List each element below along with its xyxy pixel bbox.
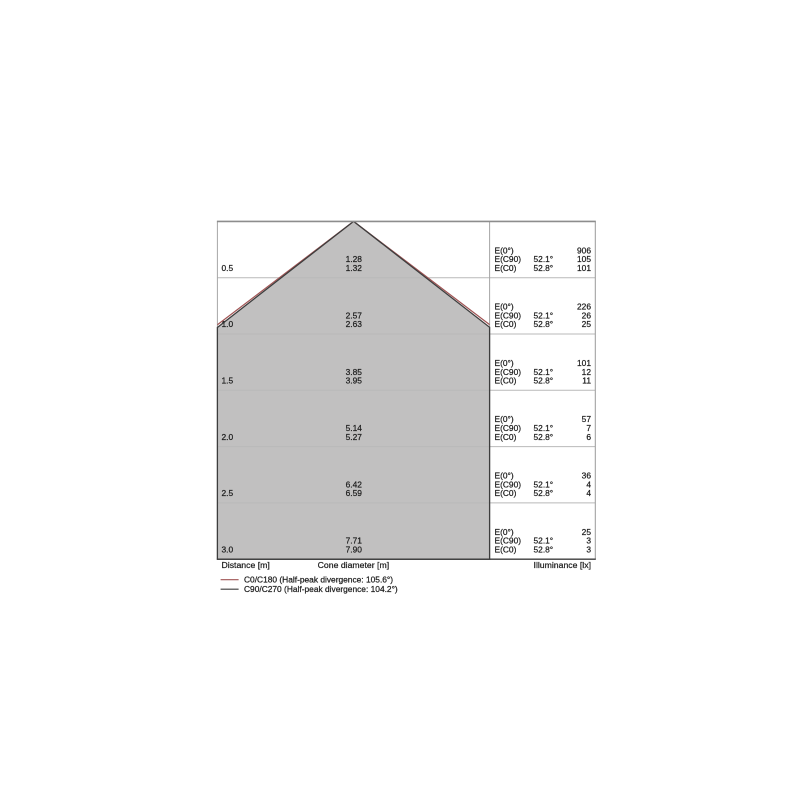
svg-text:52.8°: 52.8° bbox=[534, 488, 554, 498]
svg-text:11: 11 bbox=[582, 376, 591, 386]
svg-text:Illuminance [lx]: Illuminance [lx] bbox=[534, 560, 591, 570]
svg-text:7.90: 7.90 bbox=[346, 544, 363, 554]
svg-text:E(C0): E(C0) bbox=[495, 376, 517, 386]
svg-text:C90/C270 (Half-peak divergence: C90/C270 (Half-peak divergence: 104.2°) bbox=[244, 584, 398, 594]
svg-text:52.8°: 52.8° bbox=[534, 319, 554, 329]
svg-text:E(C0): E(C0) bbox=[495, 432, 517, 442]
svg-text:2.0: 2.0 bbox=[222, 432, 234, 442]
svg-text:C0/C180 (Half-peak divergence:: C0/C180 (Half-peak divergence: 105.6°) bbox=[244, 575, 393, 585]
svg-text:52.8°: 52.8° bbox=[534, 376, 554, 386]
svg-text:1.0: 1.0 bbox=[222, 319, 234, 329]
svg-text:1.32: 1.32 bbox=[346, 263, 363, 273]
svg-text:1.5: 1.5 bbox=[222, 376, 234, 386]
svg-text:5.27: 5.27 bbox=[346, 432, 363, 442]
svg-text:52.8°: 52.8° bbox=[534, 263, 554, 273]
svg-text:6.59: 6.59 bbox=[346, 488, 363, 498]
svg-text:4: 4 bbox=[586, 488, 591, 498]
svg-text:3.95: 3.95 bbox=[346, 376, 363, 386]
svg-text:E(C0): E(C0) bbox=[495, 263, 517, 273]
svg-text:52.8°: 52.8° bbox=[534, 432, 554, 442]
svg-text:6: 6 bbox=[586, 432, 591, 442]
svg-text:E(C0): E(C0) bbox=[495, 319, 517, 329]
svg-text:3.0: 3.0 bbox=[222, 544, 234, 554]
svg-text:2.5: 2.5 bbox=[222, 488, 234, 498]
svg-text:52.8°: 52.8° bbox=[534, 544, 554, 554]
svg-text:2.63: 2.63 bbox=[346, 319, 363, 329]
svg-text:E(C0): E(C0) bbox=[495, 544, 517, 554]
svg-text:Cone diameter [m]: Cone diameter [m] bbox=[318, 560, 389, 570]
svg-text:25: 25 bbox=[582, 319, 592, 329]
svg-text:E(C0): E(C0) bbox=[495, 488, 517, 498]
svg-text:Distance [m]: Distance [m] bbox=[222, 560, 270, 570]
svg-text:3: 3 bbox=[586, 544, 591, 554]
svg-text:101: 101 bbox=[577, 263, 591, 273]
svg-text:0.5: 0.5 bbox=[222, 263, 234, 273]
